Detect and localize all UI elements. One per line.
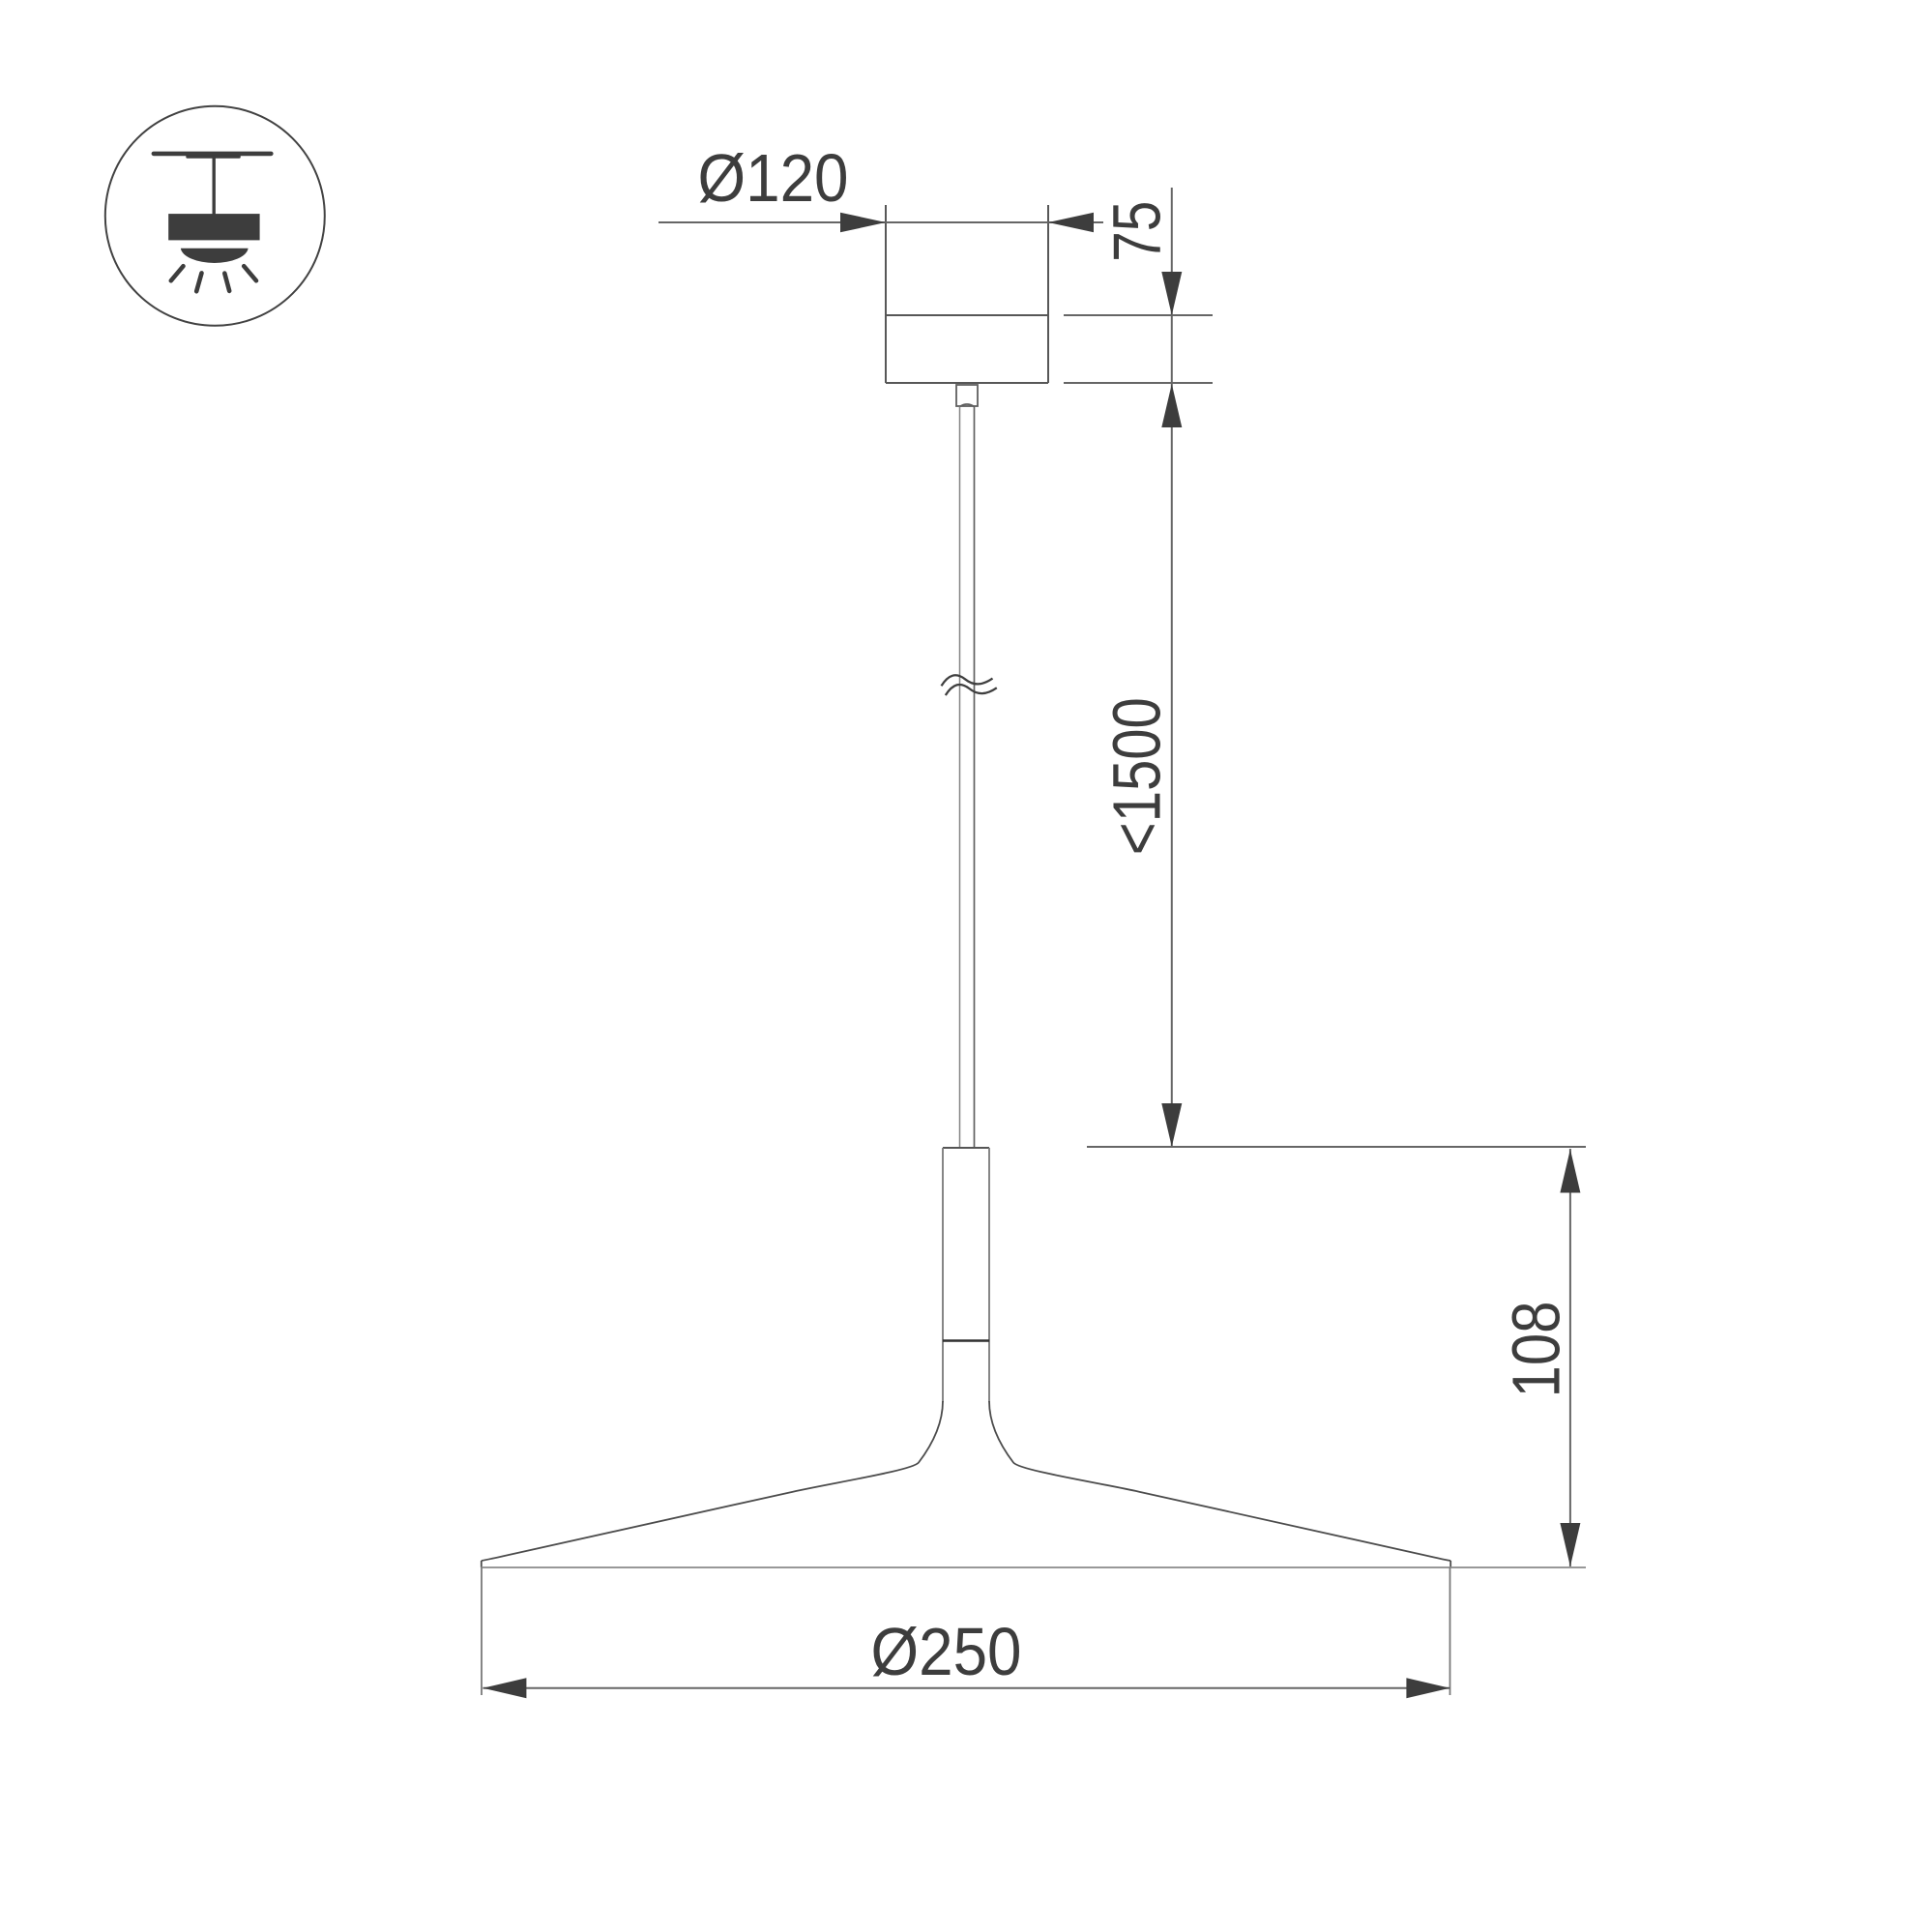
svg-text:75: 75	[1099, 201, 1175, 262]
svg-text:Ø250: Ø250	[871, 1614, 1022, 1689]
svg-text:<1500: <1500	[1099, 697, 1175, 855]
svg-text:108: 108	[1499, 1302, 1574, 1398]
svg-text:Ø120: Ø120	[698, 140, 849, 216]
